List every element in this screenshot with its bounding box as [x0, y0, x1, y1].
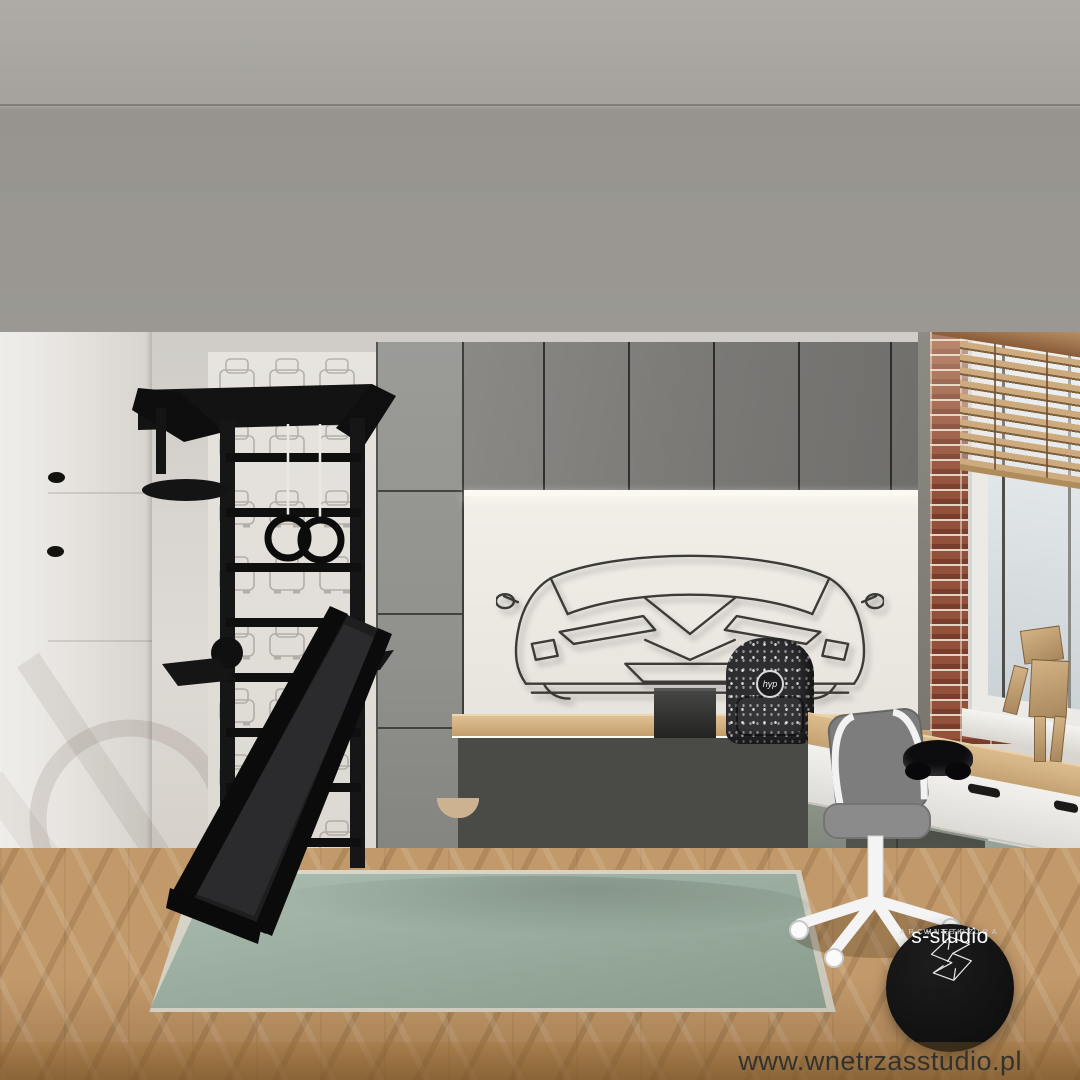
wardrobe-handle — [47, 546, 64, 557]
wooden-robot-body — [1029, 659, 1070, 719]
side-shelf-disc — [142, 479, 230, 501]
logo-subtitle-wnetrz: WNĘTRZ — [923, 927, 976, 936]
ladder-strap — [156, 408, 166, 474]
studio-logo-badge: s-studio ARCHITEKTURA WNĘTRZ — [886, 924, 1014, 1052]
cabinet-door-seam — [543, 342, 545, 490]
headphone-cup — [945, 762, 971, 780]
under-cabinet-light — [464, 490, 936, 496]
chair-gas-lift — [868, 836, 883, 898]
cabinet-door-seam — [713, 342, 715, 490]
headphone-cup — [905, 762, 931, 780]
car-silhouette-wall-art — [496, 536, 884, 708]
blind-string — [1046, 342, 1048, 478]
watermark-strip: www.wnetrzasstudio.pl — [0, 1042, 1080, 1080]
cabinet-door-seam — [798, 342, 800, 490]
blind-string — [994, 333, 996, 469]
backpack-brand-logo: hyp — [756, 670, 784, 698]
website-watermark: www.wnetrzasstudio.pl — [738, 1046, 1022, 1077]
wardrobe-handle — [48, 472, 65, 483]
ceiling-seam — [0, 104, 1080, 106]
drawer-handle-slit — [1054, 800, 1078, 814]
backpack-logo-text: hyp — [763, 679, 778, 689]
chair-seat — [824, 804, 930, 838]
storage-box — [654, 688, 716, 738]
kids-room-render: hyp — [0, 0, 1080, 1080]
cabinet-door-seam — [890, 342, 892, 490]
ceiling — [0, 0, 1080, 332]
cabinet-door-seam — [628, 342, 630, 490]
wooden-robot-leg — [1034, 716, 1046, 762]
gym-ladder-and-slide — [120, 368, 412, 952]
headphones — [903, 740, 973, 776]
